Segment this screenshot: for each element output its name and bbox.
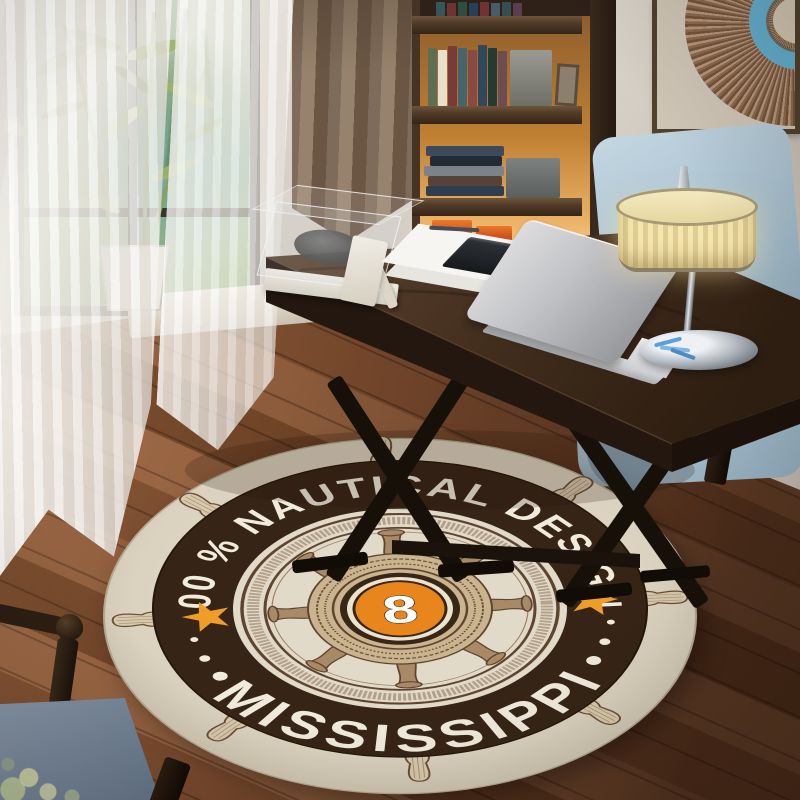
stacked-book	[430, 156, 502, 166]
book-spine	[502, 2, 511, 16]
lamp-finial	[678, 166, 690, 190]
stacked-book	[426, 186, 504, 196]
book-spine	[428, 48, 437, 106]
book-spine	[458, 2, 467, 16]
book-spine	[513, 3, 522, 16]
stacked-book	[426, 146, 504, 156]
book-spine	[498, 51, 507, 106]
book-spine	[491, 3, 500, 16]
stacked-book	[428, 176, 502, 186]
book-spine	[469, 3, 478, 16]
lamp-stem	[683, 270, 696, 338]
book-spine	[488, 48, 497, 106]
shelf-board	[412, 16, 582, 34]
photo-frame	[555, 63, 580, 106]
nautical-round-rug: 100 % NAUTICAL DESIGN MISSISSIPPI	[94, 428, 706, 800]
table-lamp	[598, 150, 800, 390]
storage-box	[510, 50, 552, 106]
stacked-book	[424, 166, 504, 176]
wall-art	[652, 0, 800, 134]
storage-box	[506, 158, 560, 198]
home-office-photo: 100 % NAUTICAL DESIGN MISSISSIPPI	[0, 0, 800, 800]
book-spine	[478, 45, 487, 106]
book-spine	[448, 46, 457, 106]
shelf-board	[412, 198, 582, 216]
lamp-base	[640, 330, 758, 370]
lamp-shade-top	[616, 188, 758, 226]
book-spine	[480, 2, 489, 16]
book-spine	[436, 2, 445, 16]
book-spine	[447, 3, 456, 16]
book-spine	[438, 50, 447, 106]
easel-stand-panel	[340, 235, 389, 307]
hub-number: 8	[380, 588, 421, 632]
shelf-board	[412, 106, 582, 124]
top-shelf-books	[420, 0, 590, 16]
book-spine	[468, 50, 477, 106]
book-spine	[458, 48, 467, 106]
